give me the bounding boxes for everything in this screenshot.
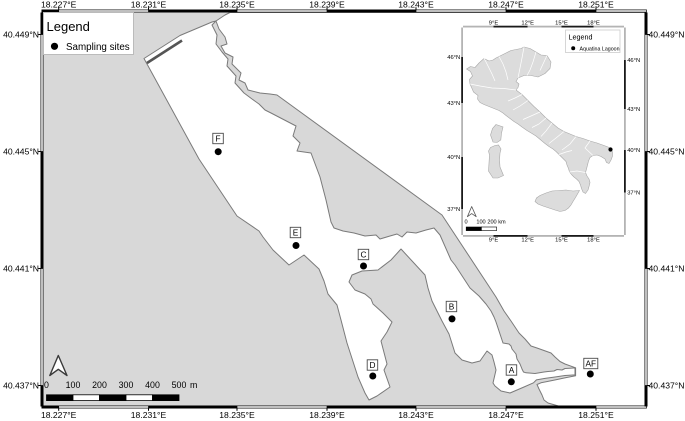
svg-text:46°N: 46°N (627, 58, 640, 64)
svg-text:500: 500 (172, 380, 187, 390)
svg-text:18.235°E: 18.235°E (219, 410, 255, 420)
svg-text:18.239°E: 18.239°E (309, 0, 345, 10)
svg-text:A: A (509, 365, 515, 375)
svg-text:12°E: 12°E (521, 238, 534, 244)
svg-text:40.441°N: 40.441°N (3, 264, 39, 274)
svg-text:12°E: 12°E (521, 21, 534, 27)
svg-text:40.449°N: 40.449°N (649, 30, 685, 40)
svg-text:Aquatina Lagoon: Aquatina Lagoon (580, 46, 620, 52)
svg-text:100: 100 (476, 220, 485, 226)
svg-text:E: E (293, 228, 299, 238)
svg-text:F: F (215, 134, 220, 144)
svg-text:0: 0 (464, 220, 467, 226)
svg-text:18.239°E: 18.239°E (309, 410, 345, 420)
svg-text:43°N: 43°N (447, 101, 460, 107)
svg-text:40°N: 40°N (447, 155, 460, 161)
svg-text:400: 400 (145, 380, 160, 390)
svg-text:37°N: 37°N (627, 191, 640, 197)
svg-text:18.247°E: 18.247°E (488, 410, 524, 420)
svg-text:37°N: 37°N (447, 207, 460, 213)
svg-text:18.247°E: 18.247°E (488, 0, 524, 10)
svg-text:D: D (370, 360, 376, 370)
svg-text:40°N: 40°N (627, 148, 640, 154)
svg-text:40.449°N: 40.449°N (3, 30, 39, 40)
svg-text:18.251°E: 18.251°E (578, 0, 614, 10)
svg-text:18.251°E: 18.251°E (578, 410, 614, 420)
svg-text:300: 300 (119, 380, 134, 390)
svg-text:0: 0 (44, 380, 49, 390)
svg-text:200 km: 200 km (487, 220, 506, 226)
svg-text:9°E: 9°E (489, 238, 499, 244)
svg-text:18.231°E: 18.231°E (131, 410, 167, 420)
svg-text:18.243°E: 18.243°E (398, 0, 434, 10)
svg-text:18°E: 18°E (587, 238, 600, 244)
svg-text:18°E: 18°E (587, 21, 600, 27)
svg-text:18.231°E: 18.231°E (131, 0, 167, 10)
svg-text:200: 200 (92, 380, 107, 390)
svg-text:40.441°N: 40.441°N (649, 264, 685, 274)
svg-text:40.437°N: 40.437°N (649, 381, 685, 391)
svg-text:18.227°E: 18.227°E (41, 0, 77, 10)
svg-text:15°E: 15°E (555, 238, 568, 244)
svg-text:18.227°E: 18.227°E (41, 410, 77, 420)
svg-text:Legend: Legend (47, 19, 90, 34)
svg-text:m: m (190, 380, 197, 390)
svg-text:43°N: 43°N (627, 107, 640, 113)
svg-text:18.243°E: 18.243°E (398, 410, 434, 420)
svg-text:40.445°N: 40.445°N (3, 147, 39, 157)
svg-text:AF: AF (585, 359, 596, 369)
svg-text:Legend: Legend (569, 33, 593, 42)
svg-text:46°N: 46°N (447, 55, 460, 61)
svg-text:C: C (361, 250, 367, 260)
svg-text:9°E: 9°E (489, 21, 499, 27)
svg-text:40.437°N: 40.437°N (3, 381, 39, 391)
svg-text:B: B (449, 302, 455, 312)
svg-text:15°E: 15°E (555, 21, 568, 27)
svg-text:40.445°N: 40.445°N (649, 147, 685, 157)
svg-text:Sampling sites: Sampling sites (66, 42, 130, 53)
svg-text:100: 100 (66, 380, 81, 390)
svg-text:18.235°E: 18.235°E (219, 0, 255, 10)
